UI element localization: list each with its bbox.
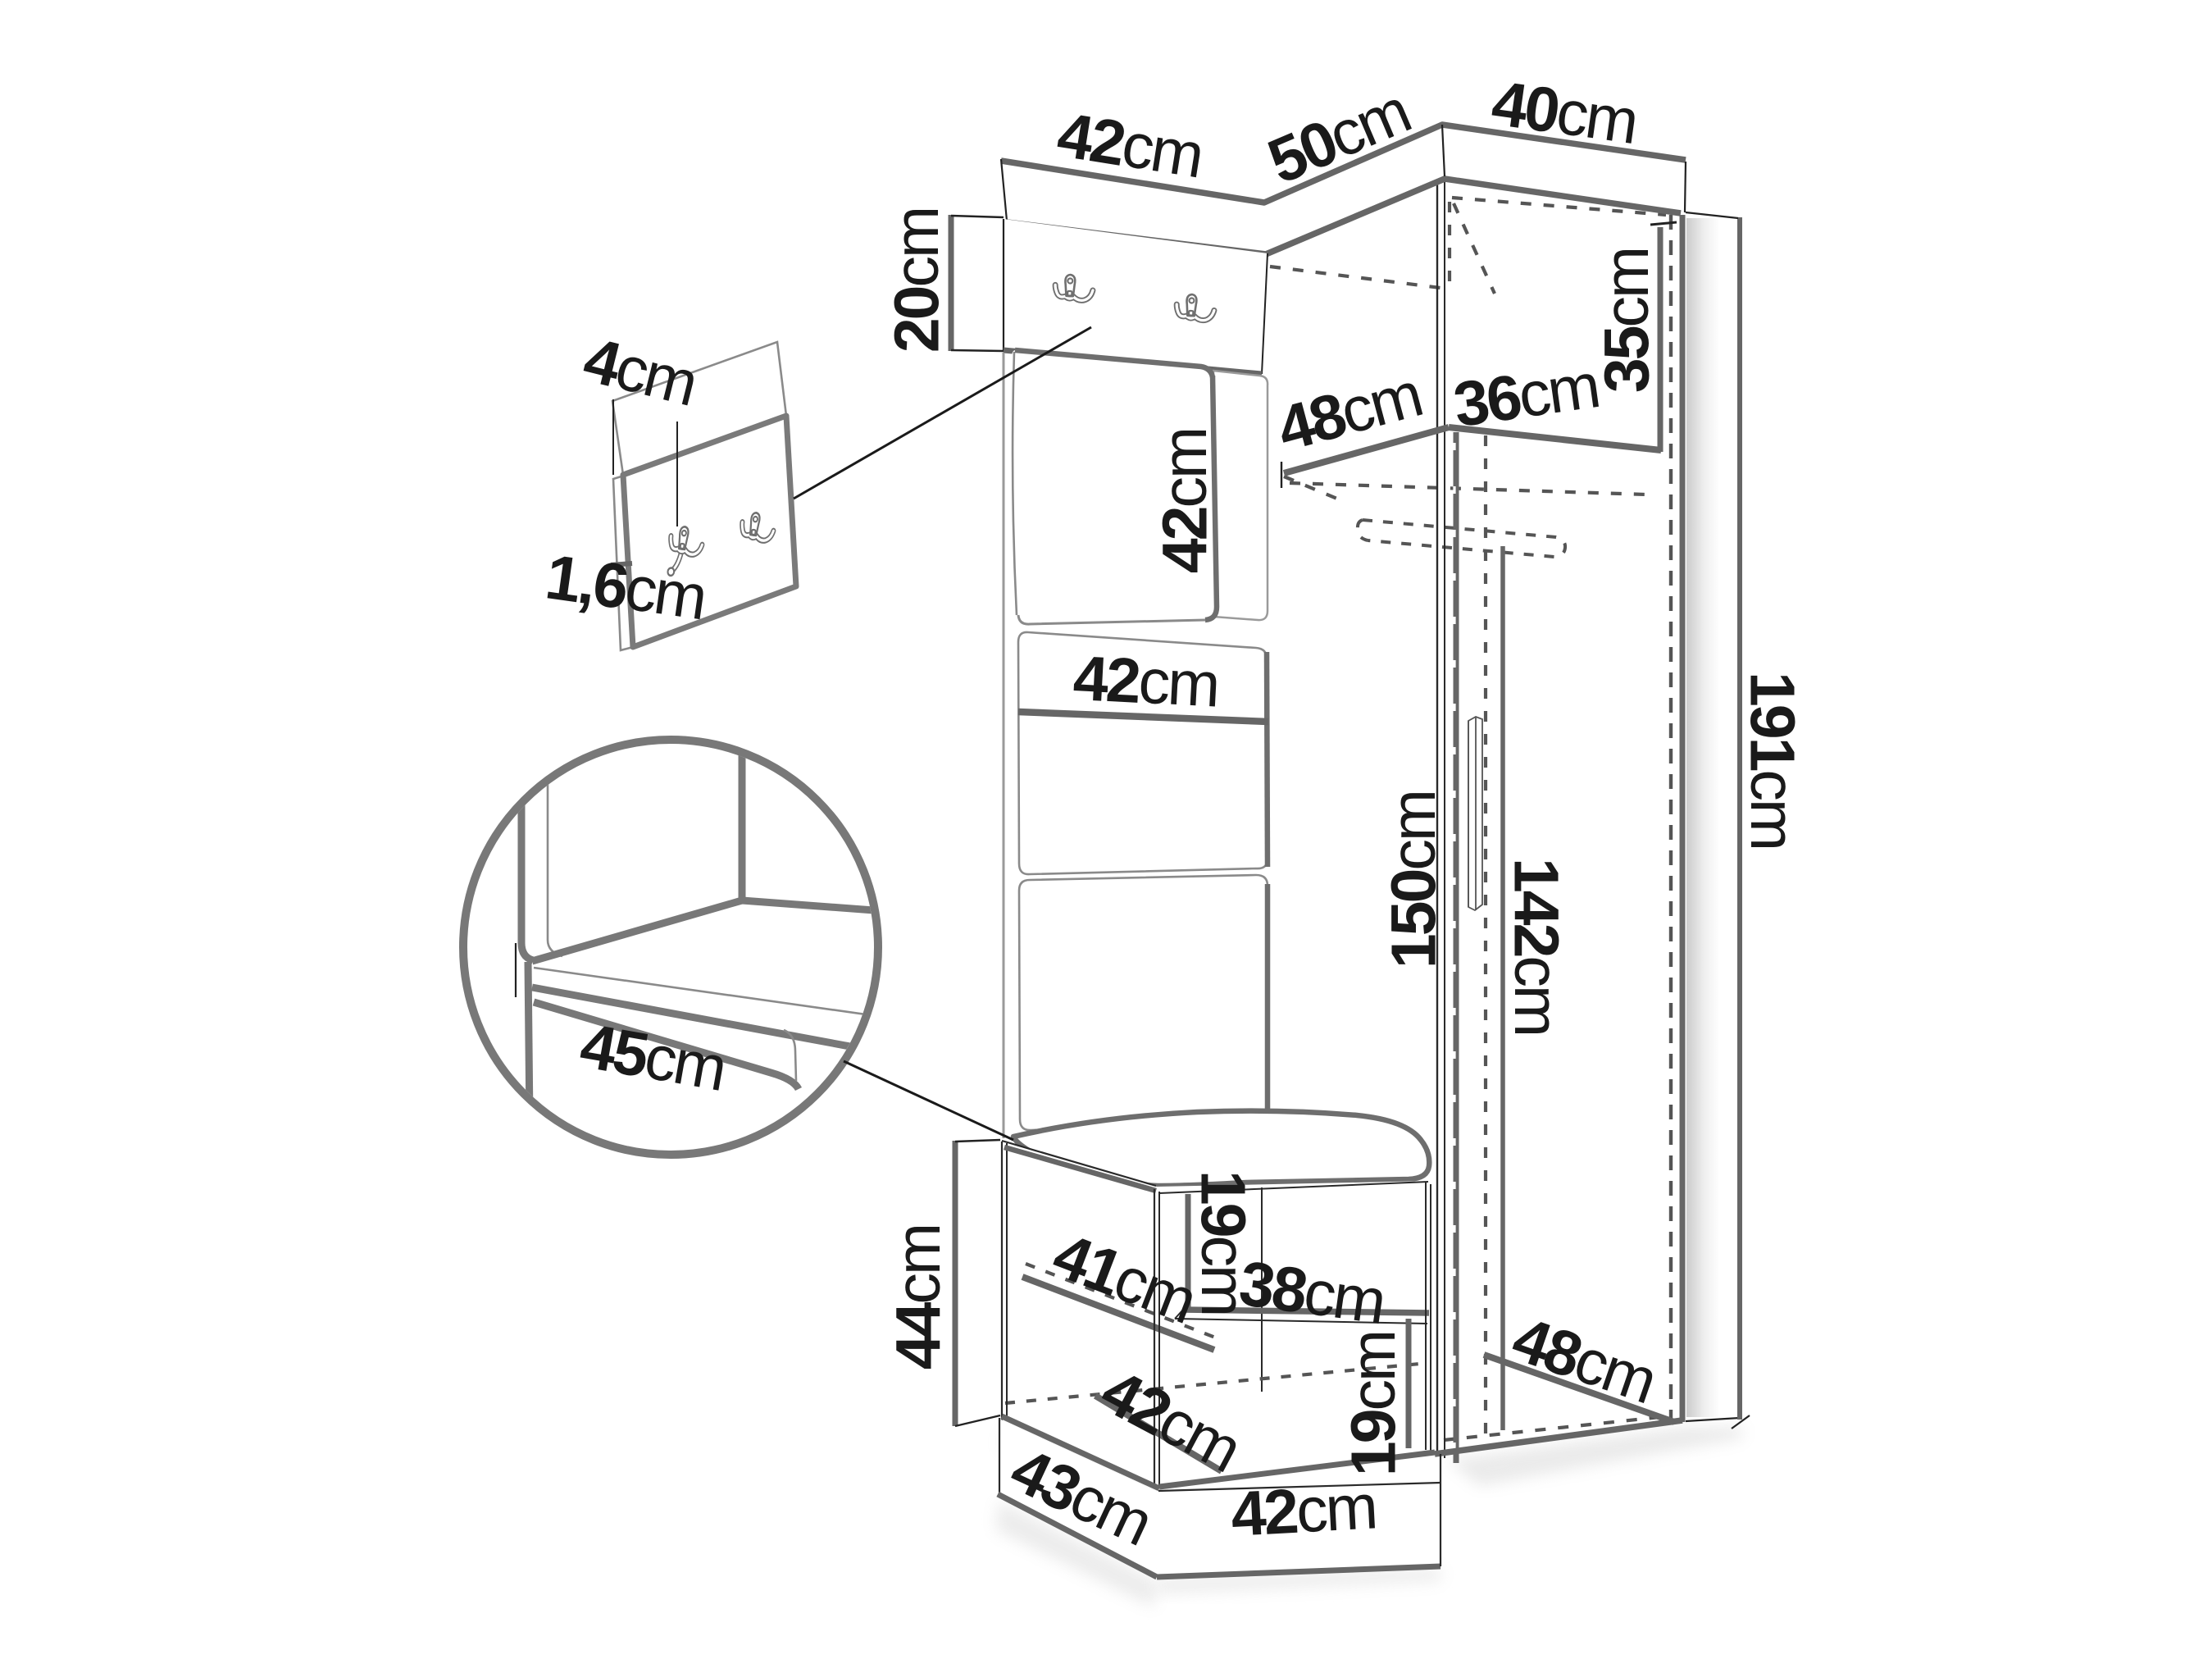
svg-text:42cm: 42cm	[1149, 429, 1220, 573]
svg-text:19cm: 19cm	[1338, 1332, 1409, 1476]
svg-text:20cm: 20cm	[881, 208, 952, 353]
svg-text:42cm: 42cm	[1072, 643, 1220, 721]
svg-text:142cm: 142cm	[1501, 858, 1572, 1035]
svg-text:150cm: 150cm	[1378, 791, 1449, 969]
svg-text:42cm: 42cm	[1229, 1472, 1377, 1550]
svg-text:35cm: 35cm	[1591, 248, 1662, 393]
svg-text:191cm: 191cm	[1737, 672, 1808, 849]
svg-text:44cm: 44cm	[883, 1225, 954, 1370]
